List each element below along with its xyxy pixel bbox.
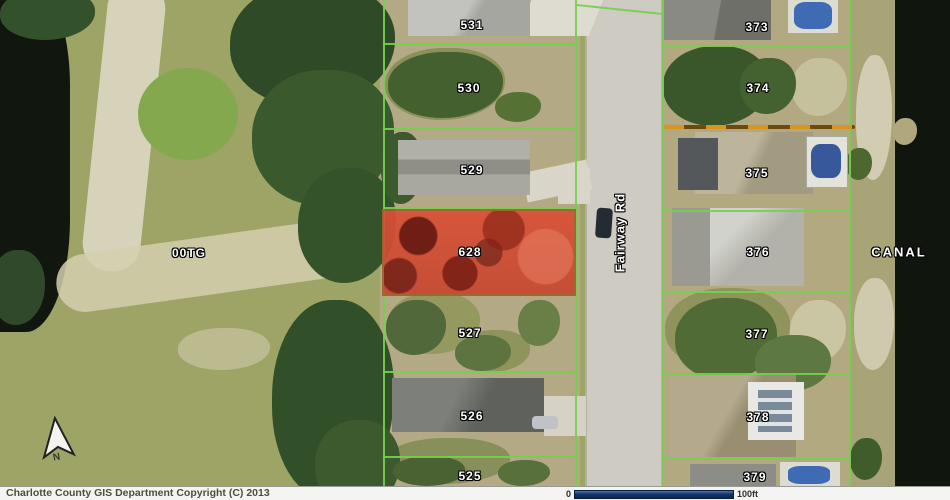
canal-label: CANAL: [871, 245, 927, 260]
parcel-label-525: 525: [458, 469, 481, 483]
house-wing-376: [672, 208, 710, 286]
parcel-label-527: 527: [458, 326, 481, 340]
pool-375: [811, 144, 841, 178]
sand-patch: [178, 328, 270, 370]
parcel-line-horizontal: [383, 371, 577, 373]
parcel-label-531: 531: [460, 18, 483, 32]
parcel-label-379: 379: [743, 470, 766, 484]
parcel-label-378: 378: [746, 410, 769, 424]
parcel-line-horizontal: [662, 291, 851, 293]
golf-green: [138, 68, 238, 160]
parcel-label-375: 375: [745, 166, 768, 180]
parcel-label-373: 373: [745, 20, 768, 34]
scale-bar-fill: [574, 490, 734, 499]
parked-car: [532, 416, 558, 429]
parcel-line-vertical: [662, 0, 664, 486]
copyright-text: Charlotte County GIS Department Copyrigh…: [6, 487, 270, 500]
map-footer: Charlotte County GIS Department Copyrigh…: [0, 486, 950, 500]
canal-water: [895, 0, 950, 486]
parcel-line-horizontal: [383, 43, 577, 45]
orange-boundary-line: [664, 125, 855, 129]
pool-373: [794, 2, 832, 29]
scale-end-label: 100ft: [737, 489, 758, 499]
scale-start-label: 0: [566, 489, 571, 499]
parcel-label-526: 526: [460, 409, 483, 423]
parcel-line-horizontal: [662, 45, 851, 47]
parcel-label-628: 628: [458, 245, 481, 259]
scale-bar: 0 100ft: [566, 487, 758, 500]
house-roof-526: [392, 378, 544, 432]
pool-379: [788, 466, 830, 484]
parcel-line-horizontal: [383, 456, 577, 458]
parcel-line-horizontal: [662, 210, 851, 212]
parcel-label-374: 374: [746, 81, 769, 95]
parcel-line-horizontal: [662, 458, 851, 460]
car-on-road: [595, 207, 613, 238]
tree-clump: [0, 0, 95, 40]
parcel-label-377: 377: [745, 327, 768, 341]
parcel-line-horizontal: [383, 128, 577, 130]
golf-course-label: 00TG: [172, 246, 206, 260]
parcel-line-horizontal: [662, 373, 851, 375]
gis-map-view[interactable]: 531 530 529 628 527 526 525 373 374 375 …: [0, 0, 950, 500]
road-label-fairway-rd: Fairway Rd: [613, 173, 628, 293]
house-wing-375: [678, 138, 718, 190]
parcel-label-529: 529: [460, 163, 483, 177]
parcel-line-vertical: [849, 0, 851, 486]
parcel-label-376: 376: [746, 245, 769, 259]
parcel-label-530: 530: [457, 81, 480, 95]
